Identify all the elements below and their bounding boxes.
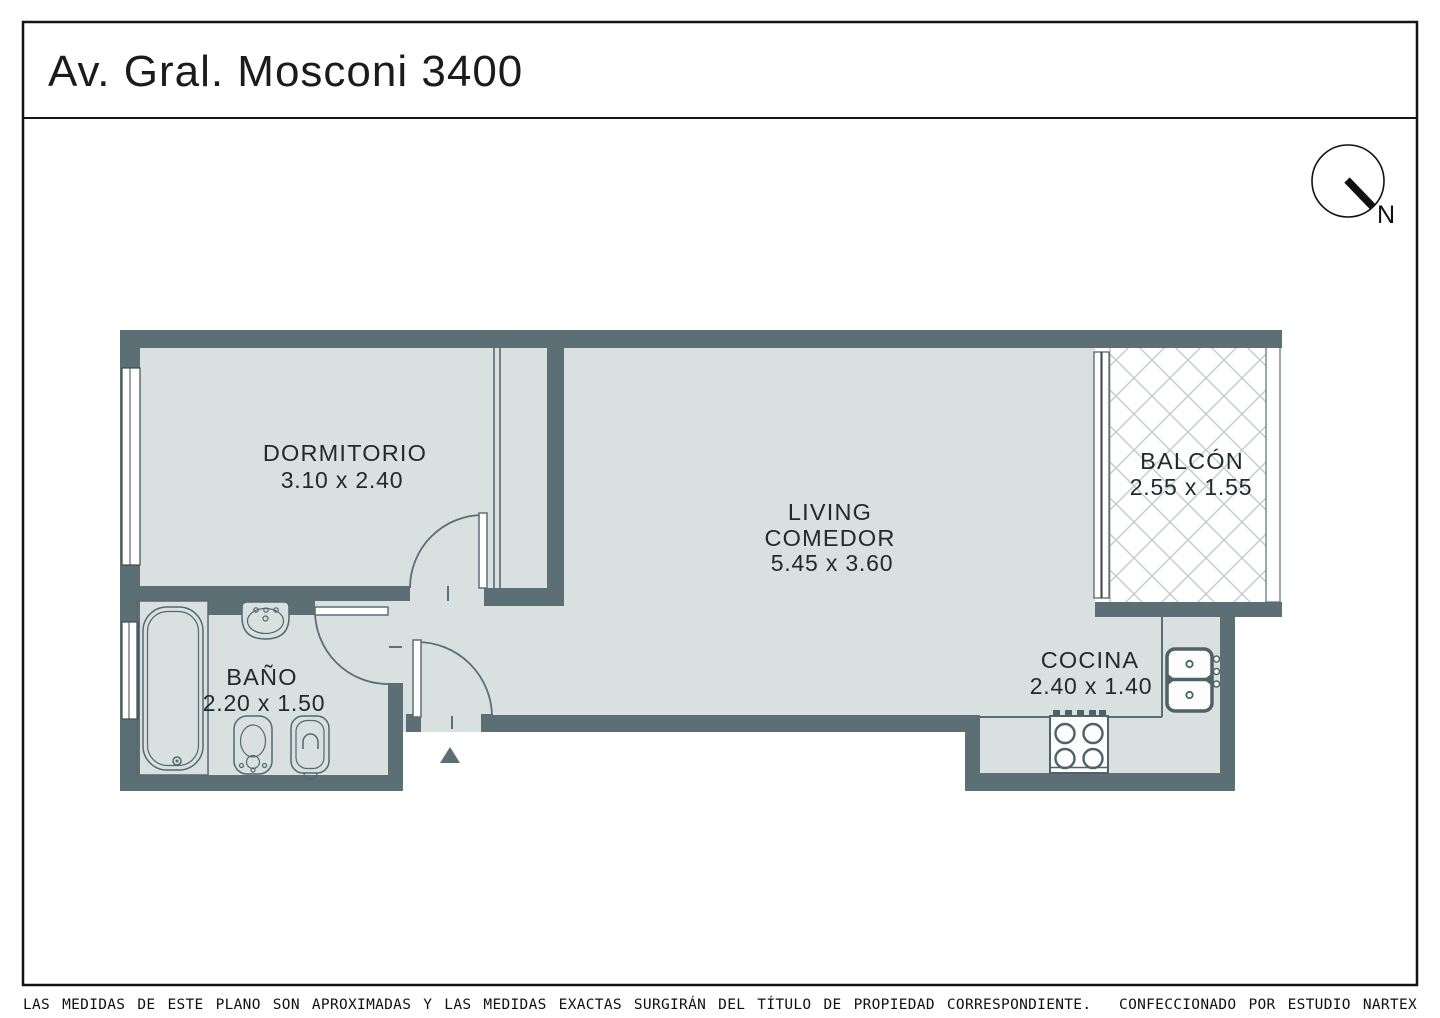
label-cocina: COCINA bbox=[1041, 647, 1140, 673]
window-dormitorio bbox=[122, 368, 140, 565]
window-bathroom bbox=[122, 622, 138, 719]
sink-tap-dot bbox=[1214, 656, 1220, 662]
balcony-railing bbox=[1266, 346, 1280, 602]
label-living: LIVING bbox=[788, 499, 872, 525]
wall-dorm-bottom bbox=[120, 586, 410, 601]
bathroom-door-leaf bbox=[315, 607, 388, 615]
wall-living-bottom bbox=[487, 715, 980, 732]
balcony-door-pane-1 bbox=[1094, 352, 1101, 598]
footer-credit: CONFECCIONADO POR ESTUDIO NARTEX bbox=[1119, 997, 1417, 1013]
north-label: N bbox=[1377, 201, 1395, 229]
balcony-door-pane-2 bbox=[1102, 352, 1109, 598]
toilet-outer bbox=[291, 716, 329, 773]
dims-balcon: 2.55 x 1.55 bbox=[1130, 474, 1253, 500]
wall-kitchen-bottom bbox=[965, 773, 1235, 791]
footer: LAS MEDIDAS DE ESTE PLANO SON APROXIMADA… bbox=[23, 996, 1417, 1013]
sink-tap-dot bbox=[1214, 669, 1220, 675]
washbasin bbox=[242, 602, 289, 639]
wall-bath-bottom bbox=[120, 775, 403, 791]
bathtub-outer bbox=[143, 607, 203, 770]
stove bbox=[1050, 710, 1108, 773]
dims-dormitorio: 3.10 x 2.40 bbox=[281, 467, 404, 493]
label-dormitorio: DORMITORIO bbox=[263, 440, 427, 466]
dims-bano: 2.20 x 1.50 bbox=[203, 690, 326, 716]
dormitorio-door-leaf bbox=[479, 513, 487, 588]
label-bano: BAÑO bbox=[226, 664, 297, 690]
wall-bath-right bbox=[388, 683, 403, 791]
footer-disclaimer: LAS MEDIDAS DE ESTE PLANO SON APROXIMADA… bbox=[23, 996, 1091, 1013]
dims-living: 5.45 x 3.60 bbox=[771, 550, 894, 576]
bathtub bbox=[137, 601, 208, 775]
label-comedor: COMEDOR bbox=[764, 525, 895, 551]
dims-cocina: 2.40 x 1.40 bbox=[1030, 673, 1153, 699]
wall-balcony-bottom bbox=[1095, 602, 1282, 617]
floorplan-canvas: Av. Gral. Mosconi 3400 N bbox=[0, 0, 1440, 1018]
wall-kitchen-right bbox=[1220, 602, 1235, 791]
entry-door-leaf bbox=[413, 640, 421, 717]
wall-dorm-living bbox=[547, 348, 564, 588]
kitchen-sink bbox=[1167, 649, 1220, 711]
bathtub-drain-dot bbox=[176, 760, 179, 763]
toilet bbox=[291, 716, 329, 780]
bidet bbox=[234, 716, 272, 774]
label-balcon: BALCÓN bbox=[1140, 448, 1244, 474]
sink-tap-dot bbox=[1214, 681, 1220, 687]
page-title: Av. Gral. Mosconi 3400 bbox=[48, 47, 523, 96]
wall-stub-dorm-door bbox=[484, 588, 564, 606]
wall-top bbox=[120, 330, 1282, 348]
